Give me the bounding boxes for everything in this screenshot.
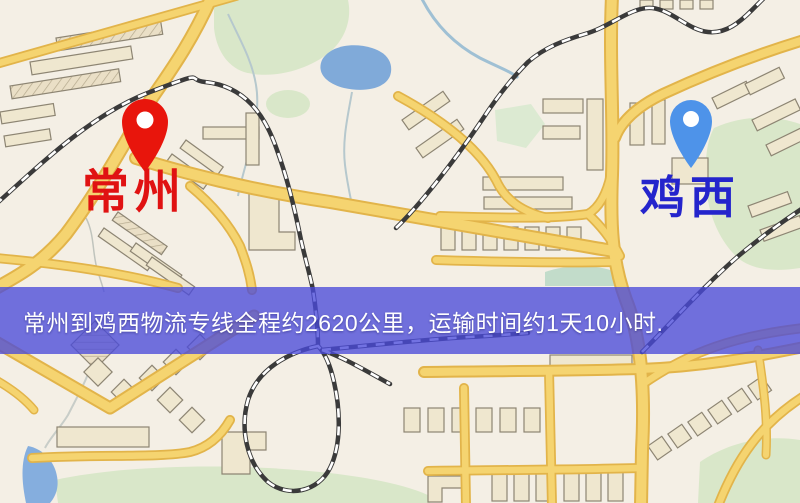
route-info-text: 常州到鸡西物流专线全程约2620公里，运输时间约1天10小时. xyxy=(23,304,663,338)
destination-city-label: 鸡西 xyxy=(640,176,740,221)
origin-pin xyxy=(116,93,176,177)
origin-city-label: 常州 xyxy=(82,170,186,217)
map-canvas xyxy=(0,0,800,503)
route-info-banner: 常州到鸡西物流专线全程约2620公里，运输时间约1天10小时. xyxy=(0,287,800,354)
logistics-route-map-screenshot: 常州 鸡西 常州到鸡西物流专线全程约2620公里，运输时间约1天10小时. xyxy=(0,0,800,503)
destination-pin xyxy=(665,96,721,174)
